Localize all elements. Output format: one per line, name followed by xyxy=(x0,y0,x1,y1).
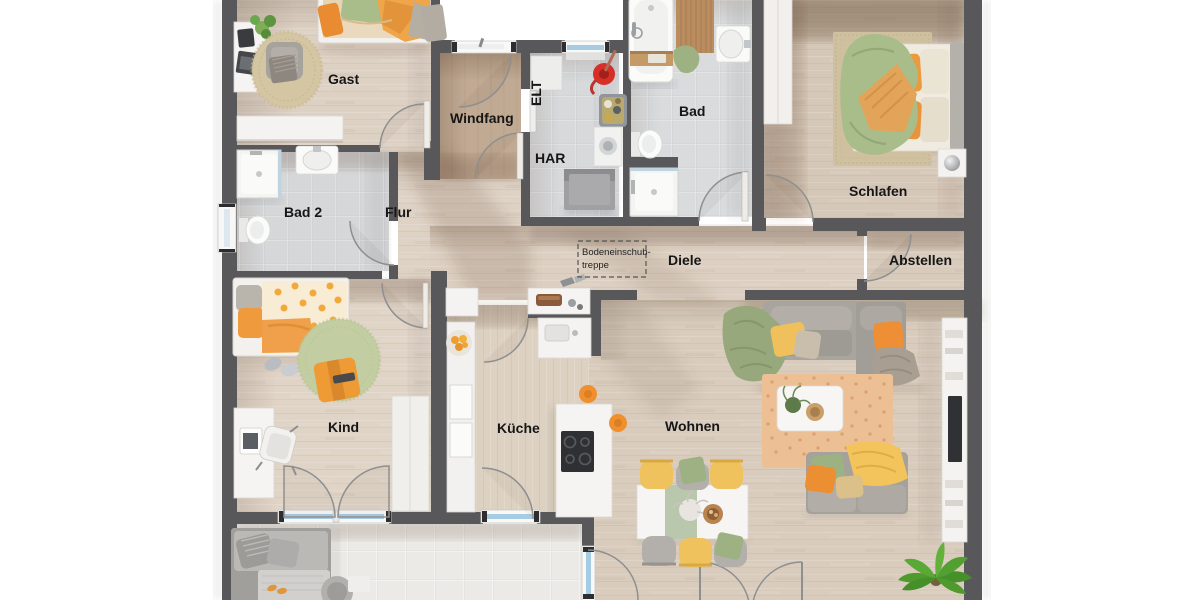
svg-text:Flur: Flur xyxy=(385,204,412,220)
svg-text:ELT: ELT xyxy=(528,80,544,106)
svg-text:Diele: Diele xyxy=(668,252,702,268)
svg-text:Kind: Kind xyxy=(328,419,359,435)
svg-text:Windfang: Windfang xyxy=(450,110,514,126)
svg-text:Abstellen: Abstellen xyxy=(889,252,952,268)
svg-text:Bad 2: Bad 2 xyxy=(284,204,322,220)
svg-text:Küche: Küche xyxy=(497,420,540,436)
svg-text:Bad: Bad xyxy=(679,103,705,119)
svg-text:Schlafen: Schlafen xyxy=(849,183,907,199)
svg-text:HAR: HAR xyxy=(535,150,565,166)
svg-text:Wohnen: Wohnen xyxy=(665,418,720,434)
svg-text:Bodeneinschub-: Bodeneinschub- xyxy=(582,247,651,258)
svg-text:treppe: treppe xyxy=(582,260,609,271)
svg-text:Gast: Gast xyxy=(328,71,359,87)
